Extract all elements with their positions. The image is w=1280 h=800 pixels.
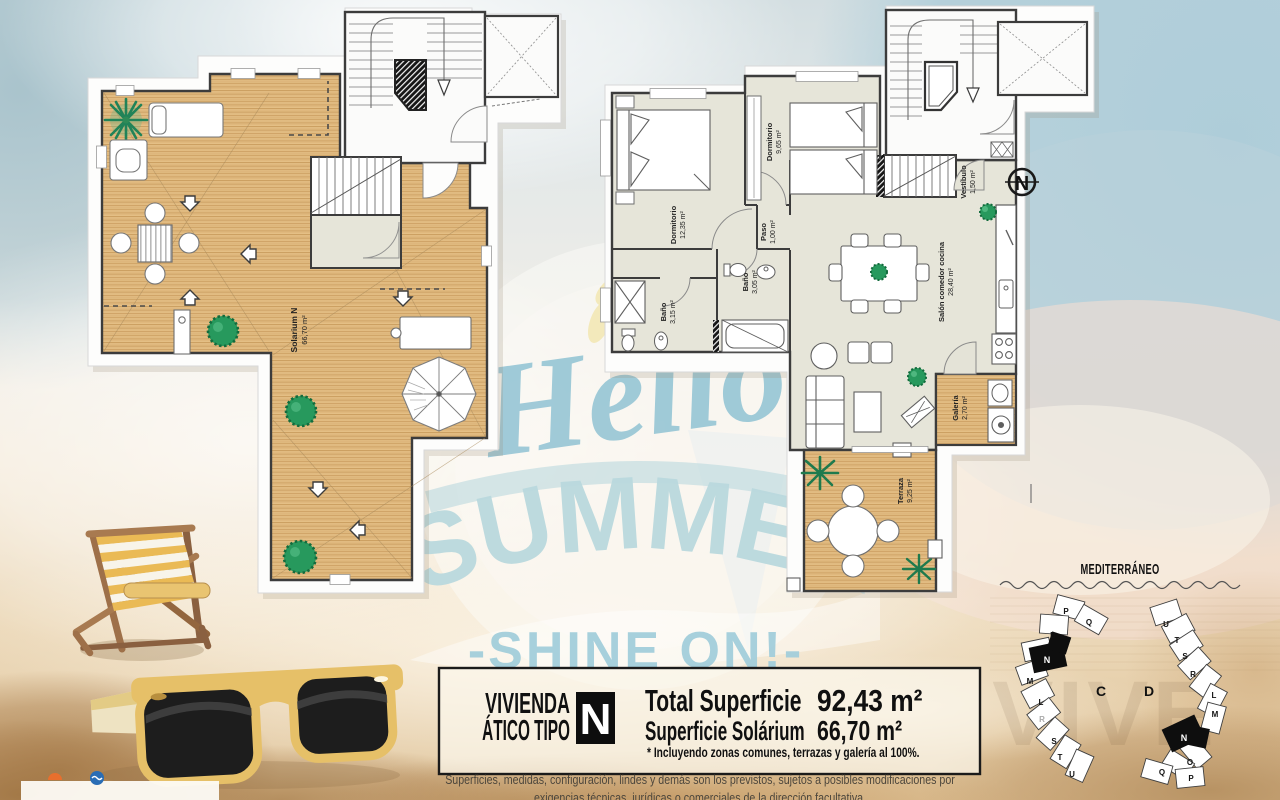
svg-text:1,00 m²: 1,00 m²	[770, 219, 777, 243]
svg-text:2,70 m²: 2,70 m²	[962, 395, 969, 419]
svg-text:Galería: Galería	[951, 394, 960, 420]
svg-text:MEDITERRÁNEO: MEDITERRÁNEO	[1080, 560, 1159, 578]
svg-text:Superficies, medidas, configur: Superficies, medidas, configuración, lin…	[445, 772, 955, 787]
svg-text:Superficie Solárium: Superficie Solárium	[645, 716, 805, 746]
svg-text:Terraza: Terraza	[896, 477, 905, 504]
svg-text:3,15 m²: 3,15 m²	[670, 299, 677, 323]
svg-text:Baño: Baño	[741, 272, 750, 291]
svg-text:1,50 m²: 1,50 m²	[970, 169, 977, 193]
svg-text:ÁTICO TIPO: ÁTICO TIPO	[482, 713, 570, 747]
svg-text:R: R	[1039, 715, 1045, 724]
svg-text:12,35 m²: 12,35 m²	[680, 211, 687, 239]
svg-text:U: U	[1163, 620, 1169, 629]
svg-text:Total Superficie: Total Superficie	[645, 683, 802, 718]
svg-text:Dormitorio: Dormitorio	[669, 205, 678, 244]
svg-text:L: L	[1212, 691, 1217, 700]
svg-text:28,40 m²: 28,40 m²	[948, 268, 955, 296]
svg-text:S: S	[1182, 652, 1188, 661]
svg-text:D: D	[1050, 631, 1056, 640]
svg-text:U: U	[1069, 770, 1075, 779]
svg-text:66,70 m²: 66,70 m²	[300, 315, 309, 345]
svg-text:92,43 m²: 92,43 m²	[817, 684, 922, 718]
svg-text:O: O	[1187, 758, 1193, 767]
svg-text:L: L	[1039, 698, 1044, 707]
svg-text:Q: Q	[1159, 768, 1165, 777]
svg-text:N: N	[1181, 733, 1188, 743]
svg-text:Dormitorio: Dormitorio	[765, 122, 774, 161]
svg-text:D: D	[1144, 683, 1154, 699]
svg-text:C: C	[1096, 683, 1106, 699]
svg-text:P: P	[1063, 607, 1069, 616]
svg-text:T: T	[1058, 753, 1063, 762]
svg-text:exigencias técnicas, jurídicas: exigencias técnicas, jurídicas o comerci…	[534, 790, 866, 800]
svg-text:9,25 m²: 9,25 m²	[907, 478, 914, 502]
svg-text:Q: Q	[1086, 618, 1092, 627]
svg-text:N: N	[1044, 655, 1051, 665]
svg-text:Solarium N: Solarium N	[289, 308, 299, 353]
svg-text:Salón comedor cocina: Salón comedor cocina	[937, 241, 946, 322]
svg-text:P: P	[1188, 774, 1194, 783]
svg-text:S: S	[1051, 737, 1057, 746]
svg-text:T: T	[1175, 636, 1180, 645]
svg-text:* Incluyendo zonas comunes, te: * Incluyendo zonas comunes, terrazas y g…	[647, 744, 920, 760]
svg-text:Vestíbulo: Vestíbulo	[959, 165, 968, 199]
svg-text:M: M	[1212, 710, 1219, 719]
svg-text:9,65 m²: 9,65 m²	[776, 129, 783, 153]
svg-text:66,70 m²: 66,70 m²	[817, 715, 902, 747]
svg-text:R: R	[1190, 670, 1196, 679]
svg-text:Baño: Baño	[659, 302, 668, 321]
svg-text:3,05 m²: 3,05 m²	[752, 269, 759, 293]
svg-text:N: N	[580, 695, 612, 744]
svg-text:N: N	[1015, 173, 1029, 195]
svg-text:Paso: Paso	[759, 223, 768, 241]
svg-text:M: M	[1027, 677, 1034, 686]
